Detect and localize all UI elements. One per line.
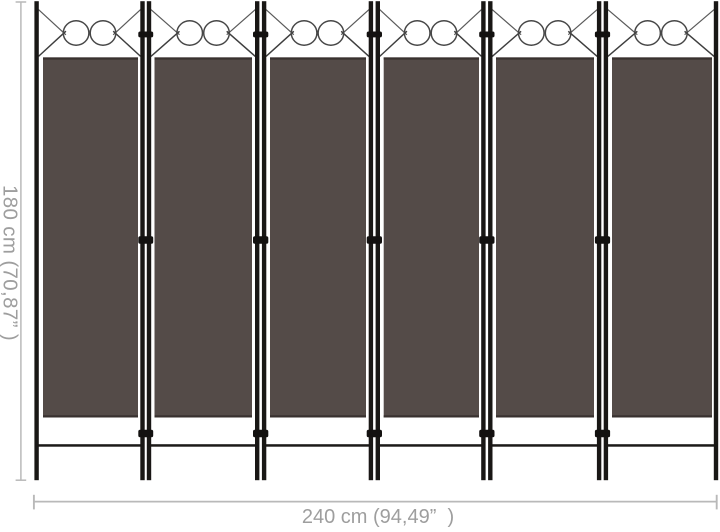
svg-text:240 cm (94,49” ): 240 cm (94,49” ) xyxy=(302,506,454,527)
svg-text:180 cm (70,87” ): 180 cm (70,87” ) xyxy=(0,185,22,341)
